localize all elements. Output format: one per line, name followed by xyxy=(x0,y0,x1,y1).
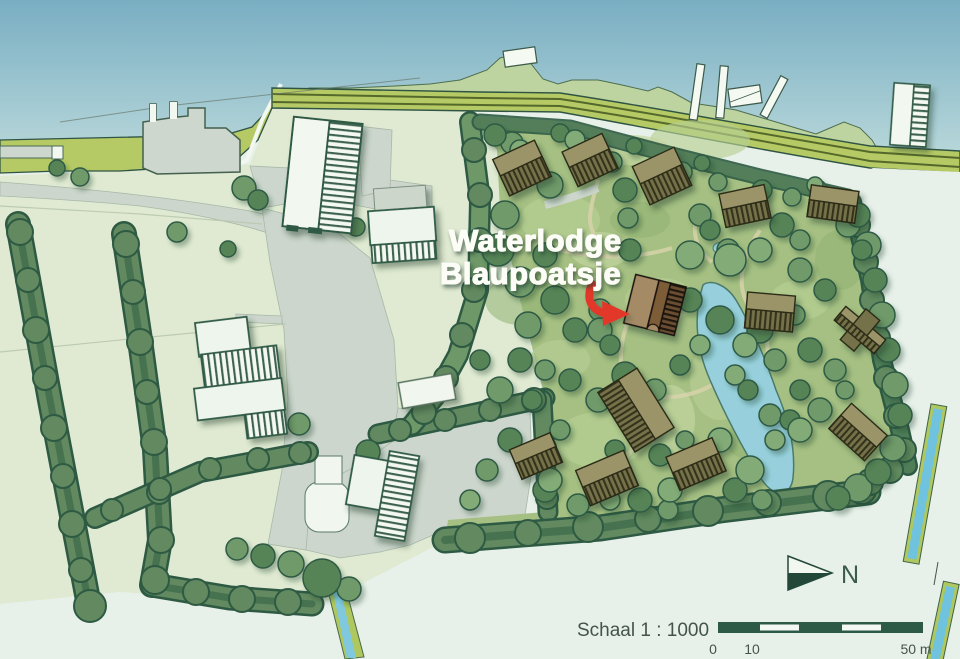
boathouse xyxy=(282,117,363,238)
scale-tick-10: 10 xyxy=(744,641,760,657)
scale-label: Schaal 1 : 1000 xyxy=(577,620,709,641)
title-line-1: Waterlodge xyxy=(449,223,622,258)
title-line-2: Blaupoatsje xyxy=(440,256,621,291)
map-canvas: Waterlodge Blaupoatsje N Schaal 1 : 1000… xyxy=(0,0,960,659)
site-plan-map: Waterlodge Blaupoatsje N Schaal 1 : 1000… xyxy=(0,0,960,659)
dike-building-east xyxy=(890,83,930,147)
scale-tick-50: 50 m xyxy=(900,641,931,657)
boathouse-apron xyxy=(358,126,392,196)
map-title: Waterlodge Blaupoatsje xyxy=(440,223,622,291)
turning-area-stub xyxy=(315,456,342,484)
pier-platform xyxy=(728,85,762,107)
turning-area xyxy=(305,482,349,532)
scale-tick-0: 0 xyxy=(709,641,717,657)
north-label: N xyxy=(841,561,859,589)
